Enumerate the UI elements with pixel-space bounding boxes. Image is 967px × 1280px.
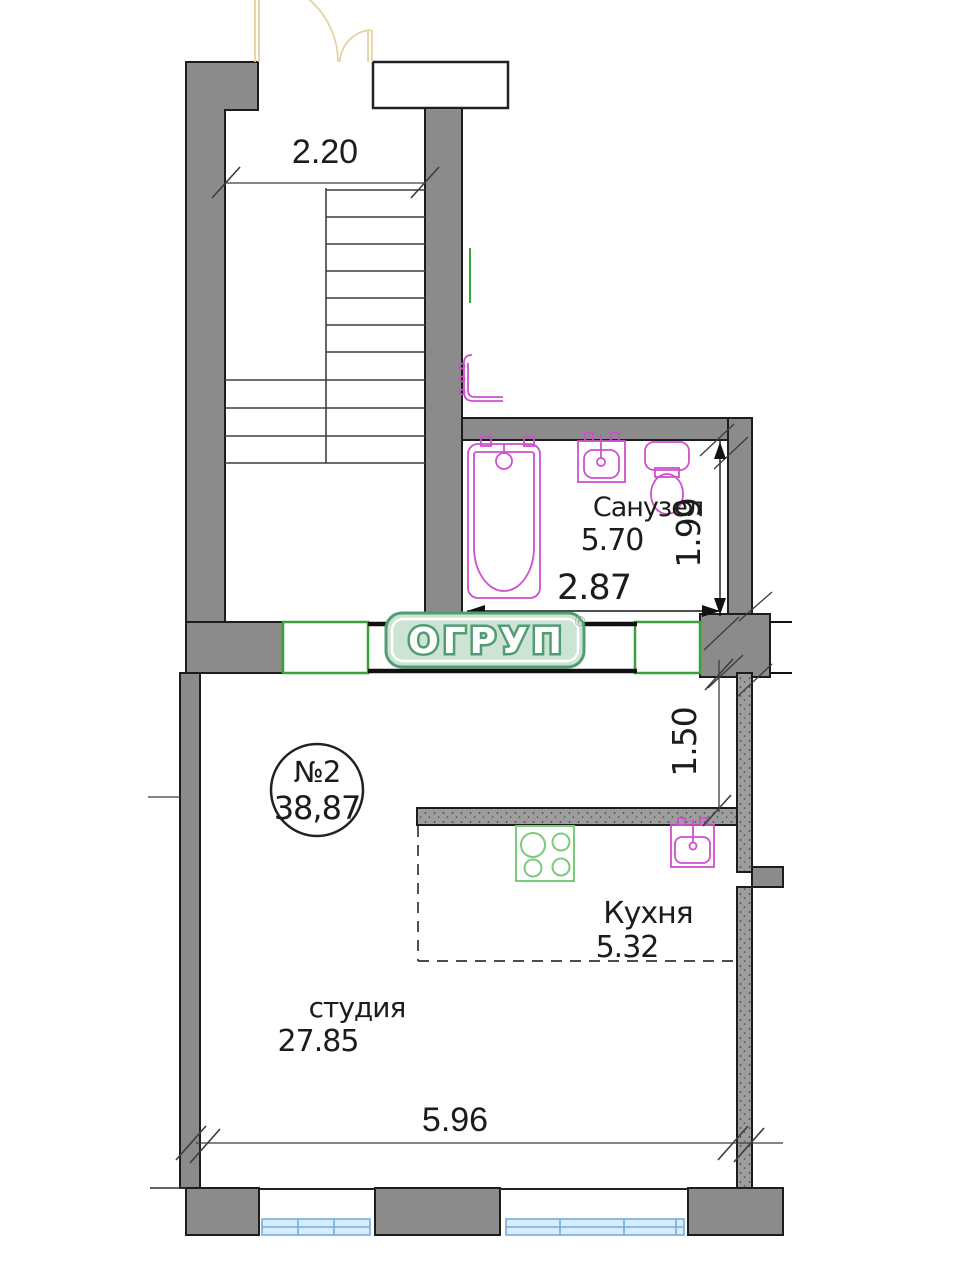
window-1 <box>262 1219 370 1235</box>
wall-kitchen-partition <box>417 808 737 825</box>
logo-watermark: ОГРУП ® <box>386 613 587 667</box>
wall-bottom-pier-1 <box>186 1188 259 1235</box>
entry-door-swings <box>255 0 372 62</box>
wall-band-right <box>700 614 770 677</box>
sink-icon <box>578 433 625 482</box>
wall-right-stub <box>752 867 783 887</box>
band-window-1 <box>283 622 368 673</box>
studio-area: 27.85 <box>278 1024 359 1059</box>
staircase <box>225 188 425 463</box>
band-window-2 <box>635 622 700 673</box>
dim-bathroom-width: 2.87 <box>557 568 631 608</box>
kitchen-area: 5.32 <box>596 930 659 965</box>
bathtub-icon <box>468 437 540 598</box>
wall-band-left <box>186 622 283 673</box>
kitchen-fixtures <box>418 818 736 961</box>
corner-fixture-icon <box>460 355 504 401</box>
logo-registered-icon: ® <box>573 614 587 630</box>
wall-bottom-pier-2 <box>375 1188 500 1235</box>
dim-top-width: 2.20 <box>292 133 358 171</box>
floor-plan: №2 38,87 ОГРУП ® 2.20 Санузел 5.70 2.87 … <box>0 0 967 1280</box>
wall-left-studio <box>180 673 200 1188</box>
studio-name: студия <box>309 991 406 1024</box>
dim-kitchen-depth: 1.50 <box>665 707 704 776</box>
bathroom-fixtures <box>460 355 690 598</box>
kitchen-name: Кухня <box>603 896 692 931</box>
unit-area: 38,87 <box>274 789 361 827</box>
wall-top-outline <box>373 62 508 108</box>
door-arc-small <box>340 30 371 62</box>
stove-icon <box>516 826 574 881</box>
unit-number: №2 <box>294 755 341 789</box>
window-2 <box>506 1219 684 1235</box>
floor-plan-drawing: №2 38,87 ОГРУП ® 2.20 Санузел 5.70 2.87 … <box>0 0 967 1280</box>
dim-bathroom-depth: 1.99 <box>669 498 708 567</box>
wall-bath-top <box>462 418 752 440</box>
wall-top-left <box>186 62 258 622</box>
dim-studio-width: 5.96 <box>422 1101 488 1139</box>
kitchen-sink-icon <box>671 818 714 867</box>
door-arc-large <box>256 0 338 62</box>
bathroom-area: 5.70 <box>581 523 644 558</box>
unit-badge: №2 38,87 <box>271 744 363 836</box>
wall-bottom-pier-3 <box>688 1188 783 1235</box>
wall-right-partition <box>737 673 752 872</box>
logo-text: ОГРУП <box>408 621 566 662</box>
kitchen-zone-boundary <box>418 826 736 961</box>
wall-bath-right <box>728 418 752 622</box>
wall-central <box>425 108 462 622</box>
